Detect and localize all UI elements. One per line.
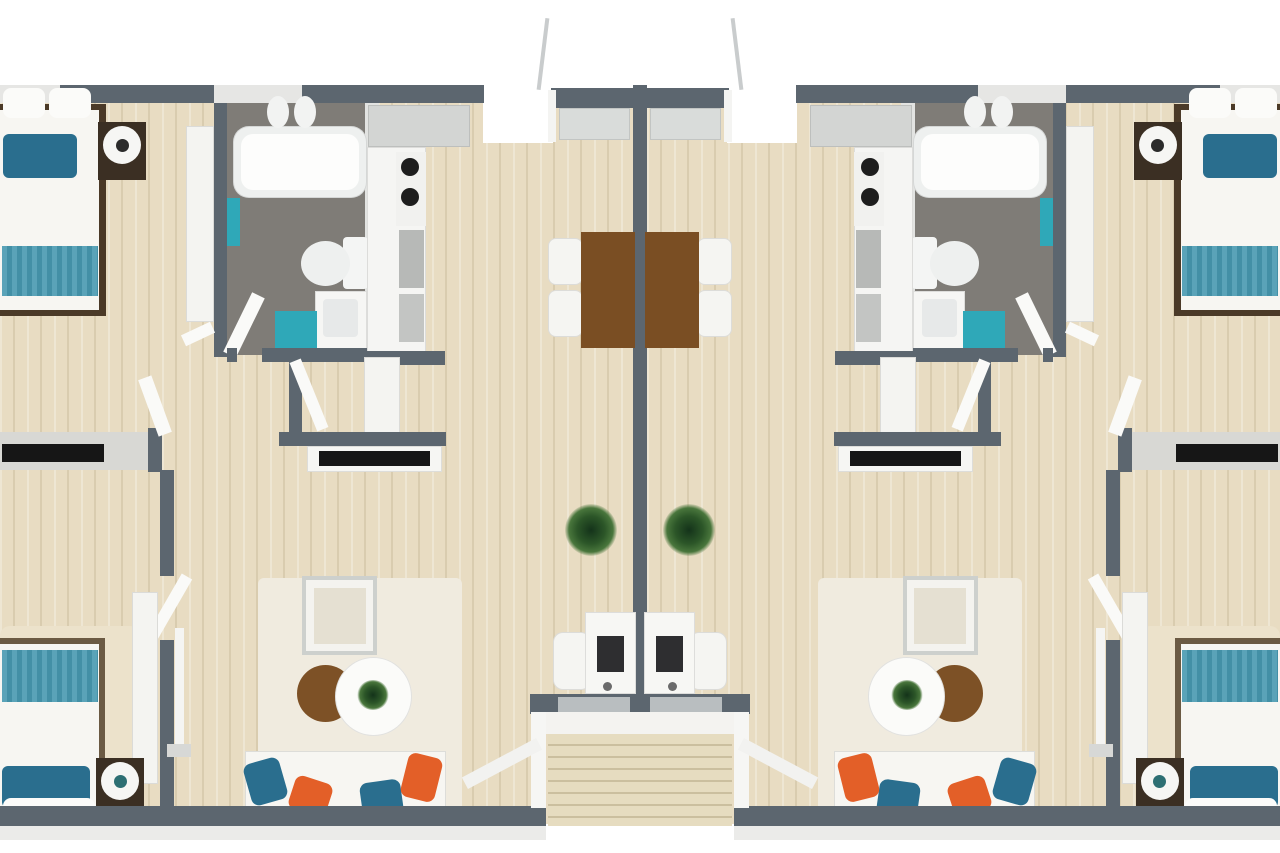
bath-wall-bottom-left	[262, 348, 380, 362]
bed-top-pillow-b-left	[49, 88, 91, 118]
bed-top-cushions-left	[3, 134, 77, 178]
armchair-cushion-left	[314, 588, 366, 644]
desk-mouse-right	[668, 682, 677, 691]
toilet-bowl-left	[301, 241, 350, 286]
bedroom-bottom-wall-a-right	[1106, 470, 1120, 576]
kitchen-upper-cabinets-right	[810, 105, 912, 147]
bath-mat-right	[963, 311, 1005, 351]
bath-faucet-a-right	[991, 96, 1013, 128]
tv-living-left	[319, 451, 430, 466]
rear-porch-post-right	[724, 90, 732, 142]
entry-steps	[548, 734, 732, 826]
rear-porch-wall-left	[551, 88, 640, 108]
stove-burner-a-right	[861, 158, 879, 176]
bathtub-basin-left	[241, 134, 359, 190]
dining-chair-b-left	[548, 290, 583, 337]
rear-notch-left	[483, 85, 553, 143]
rear-notch-right	[727, 85, 797, 143]
dining-chair-a-left	[548, 238, 583, 285]
coffee-table-plant-left	[357, 680, 389, 710]
top-window-bath-right	[976, 85, 1066, 103]
dining-chair-b-right	[697, 290, 732, 337]
duplex-floorplan	[0, 0, 1280, 853]
rear-door-left	[559, 108, 630, 140]
bedroom-bottom-wall-a-left	[160, 470, 174, 576]
lamp-bottom-center-right	[1153, 775, 1166, 788]
wall-bedroom-bath-right	[1053, 103, 1066, 357]
floor-plant-right	[663, 504, 715, 556]
front-door-right	[650, 697, 722, 712]
kitchen-appliance-left	[399, 294, 424, 342]
rear-porch-wall-right	[640, 88, 729, 108]
front-facade-left	[0, 826, 546, 840]
front-facade-right	[734, 826, 1280, 840]
bed-top-pillow-a-left	[3, 88, 45, 118]
tv-bedroom-left	[2, 444, 104, 462]
wall-bedroom-bath-left	[214, 103, 227, 357]
bed-bottom-blanket-left	[2, 650, 98, 702]
desk-mouse-left	[603, 682, 612, 691]
sink-basin-left	[323, 299, 358, 337]
hall-wall-right	[834, 432, 1001, 446]
bed-top-blanket-right	[1182, 246, 1278, 296]
tv-bedroom-right	[1176, 444, 1278, 462]
bath-faucet-b-left	[294, 96, 316, 128]
stove-burner-b-left	[401, 188, 419, 206]
closet-storage-right	[880, 357, 916, 433]
closet-bedroom-bottom-right	[1122, 592, 1148, 784]
top-wall-kitchen-right	[796, 85, 978, 103]
floor-lamp-pole-left	[175, 628, 184, 748]
closet-bedroom-top-left	[186, 126, 214, 322]
stove-burner-a-left	[401, 158, 419, 176]
kitchen-sink-unit-left	[399, 230, 424, 288]
top-window-bath-left	[214, 85, 304, 103]
rear-door-right	[650, 108, 721, 140]
entry-platform	[540, 712, 740, 734]
front-door-left	[558, 697, 630, 712]
rear-porch-rail-right	[731, 18, 744, 90]
armchair-cushion-right	[914, 588, 966, 644]
toilet-bowl-right	[930, 241, 979, 286]
top-wall-kitchen-left	[302, 85, 484, 103]
entry-rail-post-left	[531, 712, 546, 808]
closet-bedroom-top-right	[1066, 126, 1094, 322]
bath-wall-stub-left	[227, 348, 237, 362]
floor-lamp-pole-right	[1096, 628, 1105, 748]
desk-monitor-left	[597, 636, 624, 672]
bathtub-basin-right	[921, 134, 1039, 190]
floor-lamp-base-right	[1089, 744, 1113, 757]
bed-top-blanket-left	[2, 246, 98, 296]
bed-top-pillow-a-right	[1235, 88, 1277, 118]
lamp-bottom-center-left	[114, 775, 127, 788]
floor-lamp-base-left	[167, 744, 191, 757]
hall-wall-left	[279, 432, 446, 446]
rear-porch-rail-left	[537, 18, 550, 90]
dining-table-right	[645, 232, 699, 348]
kitchen-appliance-right	[856, 294, 881, 342]
closet-storage-left	[364, 357, 400, 433]
bath-wall-bottom-right	[900, 348, 1018, 362]
bath-wall-stub-right	[1043, 348, 1053, 362]
kitchen-upper-cabinets-left	[368, 105, 470, 147]
towel-rack-left	[227, 198, 240, 246]
bath-mat-left	[275, 311, 317, 351]
lamp-top-center-right	[1151, 139, 1164, 152]
stove-burner-b-right	[861, 188, 879, 206]
floor-plant-left	[565, 504, 617, 556]
bath-faucet-b-right	[964, 96, 986, 128]
coffee-table-plant-right	[891, 680, 923, 710]
lamp-top-center-left	[116, 139, 129, 152]
front-wall-right	[734, 806, 1280, 826]
dining-table-left	[581, 232, 635, 348]
sink-basin-right	[922, 299, 957, 337]
rear-porch-post-left	[548, 90, 556, 142]
entry-rail-post-right	[734, 712, 749, 808]
dining-chair-a-right	[697, 238, 732, 285]
bedroom-bottom-wall-b-right	[1106, 640, 1120, 824]
tv-living-right	[850, 451, 961, 466]
desk-monitor-right	[656, 636, 683, 672]
bed-top-cushions-right	[1203, 134, 1277, 178]
bedroom-bottom-wall-b-left	[160, 640, 174, 824]
front-wall-left	[0, 806, 546, 826]
kitchen-sink-unit-right	[856, 230, 881, 288]
closet-bedroom-bottom-left	[132, 592, 158, 784]
floorplan-canvas	[0, 0, 1280, 853]
bath-faucet-a-left	[267, 96, 289, 128]
towel-rack-right	[1040, 198, 1053, 246]
bed-top-pillow-b-right	[1189, 88, 1231, 118]
bed-bottom-blanket-right	[1182, 650, 1278, 702]
